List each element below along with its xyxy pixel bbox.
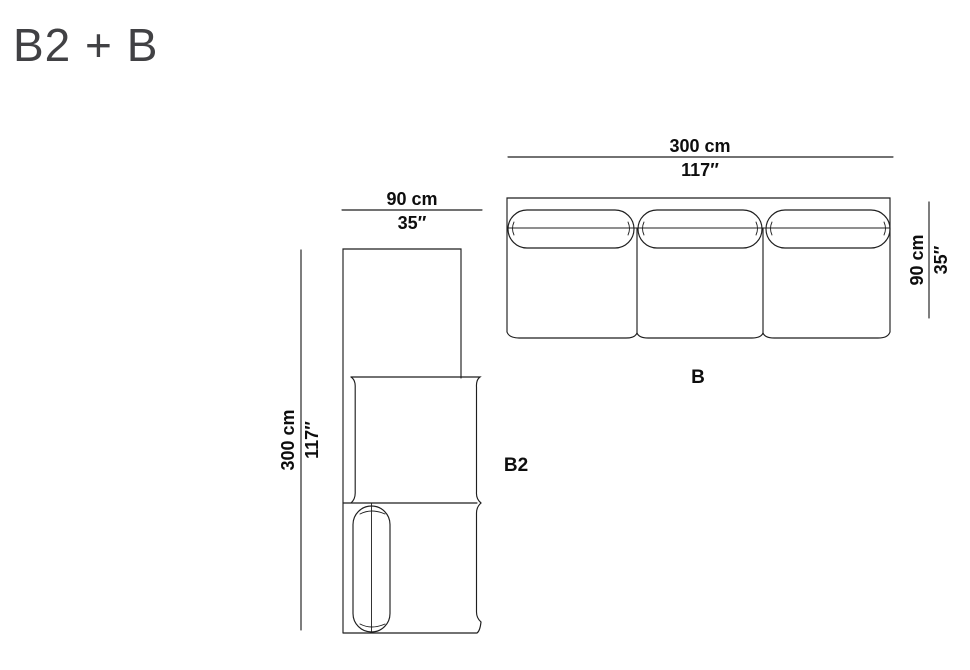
- b-cushion-seam-tick: [643, 222, 645, 235]
- b2-length-label-cm: 300 cm: [278, 409, 298, 470]
- sofa-dimension-drawing: 300 cm 117″ 90 cm 35″: [0, 0, 970, 670]
- b2-lower-right-edge: [477, 503, 482, 622]
- b-back-cushion-2: [638, 210, 762, 248]
- b2-outline: [343, 249, 461, 633]
- b-front-edge: [507, 332, 890, 338]
- module-b2-drawing: 90 cm 35″ 300 cm 117″ B2: [278, 189, 528, 633]
- b2-module-label: B2: [504, 455, 528, 476]
- b2-cushion-seam-tick: [360, 624, 385, 627]
- b-sofa-outline: [507, 198, 890, 332]
- b-depth-label-cm: 90 cm: [907, 234, 927, 285]
- b-cushion-seam-tick: [513, 222, 515, 235]
- b-module-label: B: [691, 367, 705, 388]
- b-back-cushion-1: [508, 210, 634, 248]
- b-cushion-seam-tick: [771, 222, 773, 235]
- module-b-drawing: 300 cm 117″ 90 cm 35″: [507, 136, 951, 388]
- b2-bottom-edge: [343, 622, 481, 633]
- b-cushion-seam-tick: [756, 222, 758, 235]
- b-cushion-seam-tick: [628, 222, 630, 235]
- b-back-cushion-3: [766, 210, 890, 248]
- b-width-label-cm: 300 cm: [669, 136, 730, 156]
- b-depth-label-in: 35″: [931, 245, 951, 274]
- b-cushion-seam-tick: [884, 222, 886, 235]
- b2-seat-cushion-right: [351, 377, 481, 503]
- b-width-label-in: 117″: [681, 160, 719, 180]
- technical-drawing-page: B2 + B 300 cm 117″: [0, 0, 970, 670]
- b2-width-label-in: 35″: [398, 213, 427, 233]
- b2-length-label-in: 117″: [302, 421, 322, 459]
- b2-width-label-cm: 90 cm: [386, 189, 437, 209]
- b2-cushion-seam-tick: [360, 511, 385, 514]
- b2-seat-cushion-left: [351, 377, 355, 503]
